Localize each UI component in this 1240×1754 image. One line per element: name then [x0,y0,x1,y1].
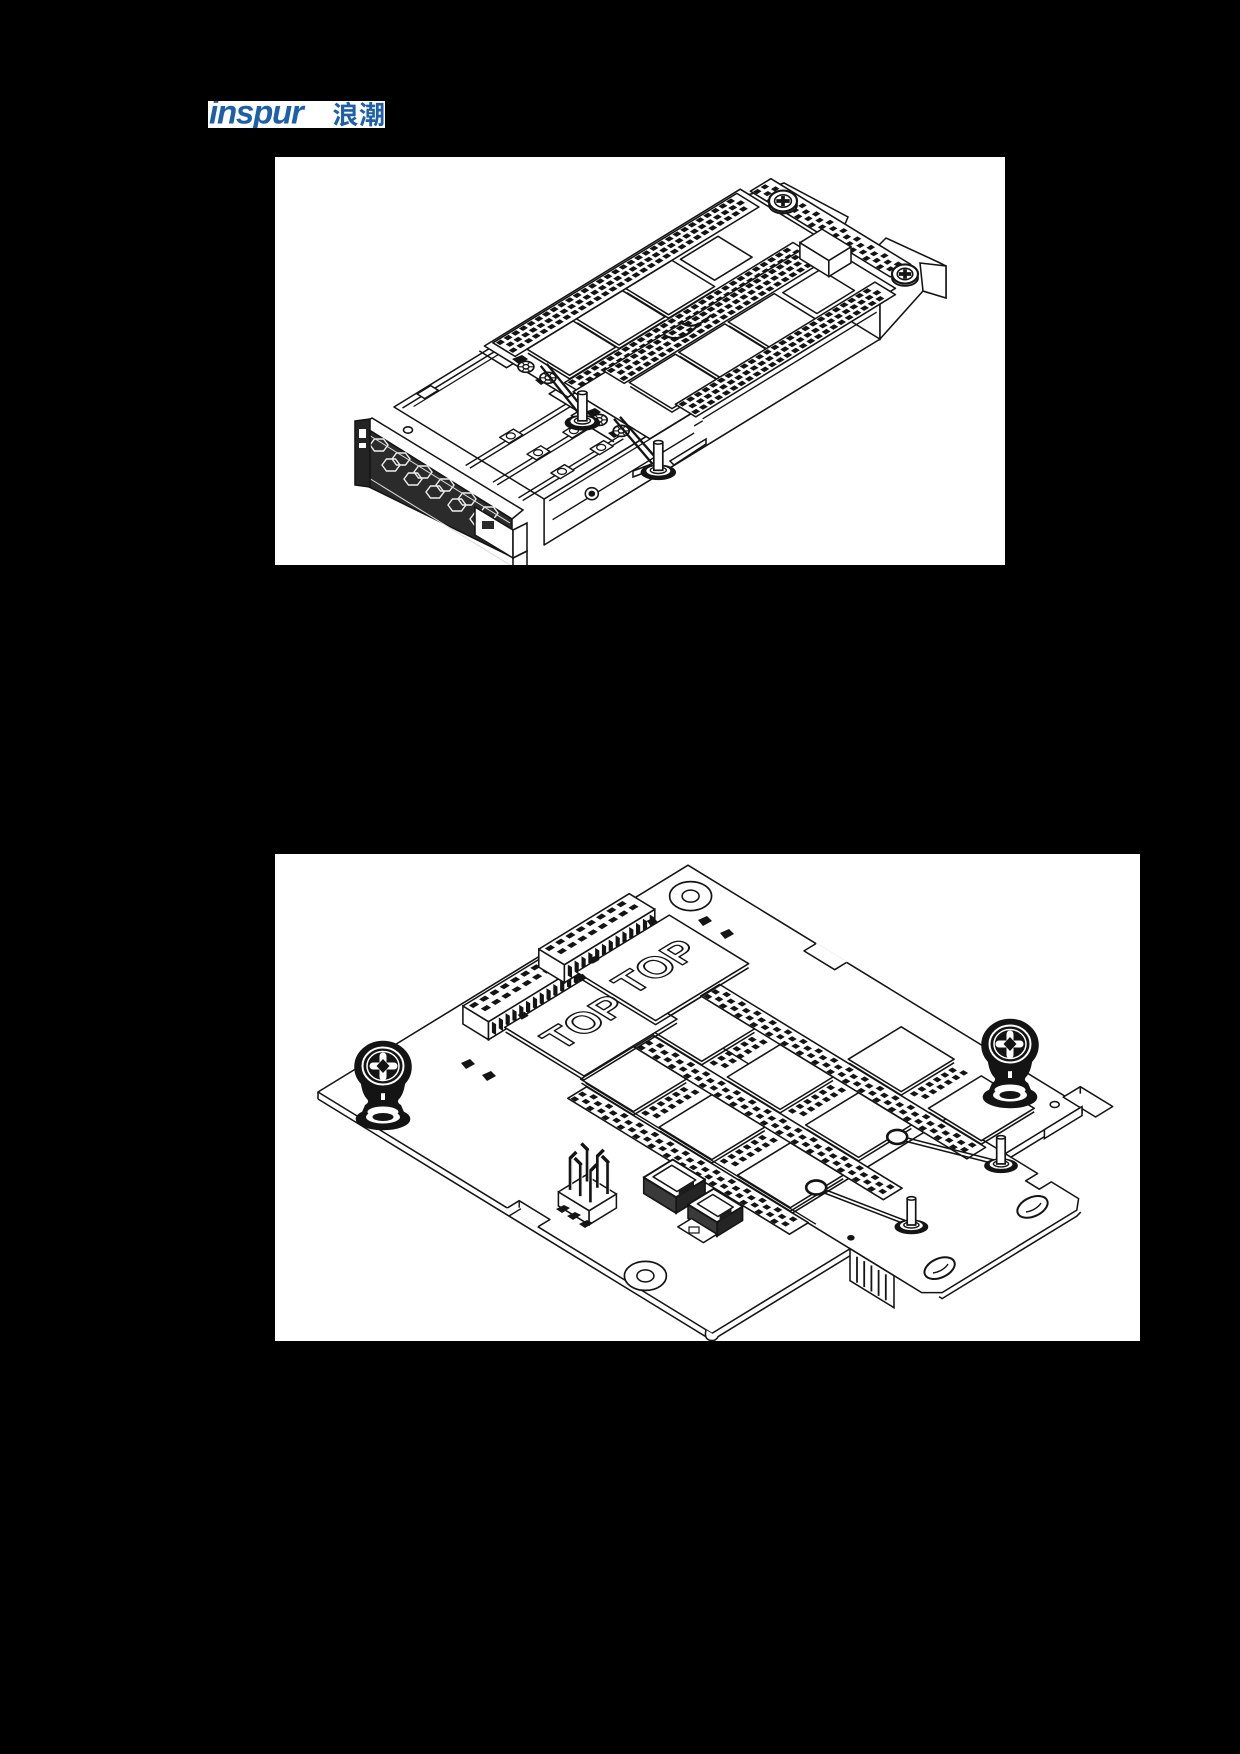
svg-text:inspur: inspur [209,101,306,128]
